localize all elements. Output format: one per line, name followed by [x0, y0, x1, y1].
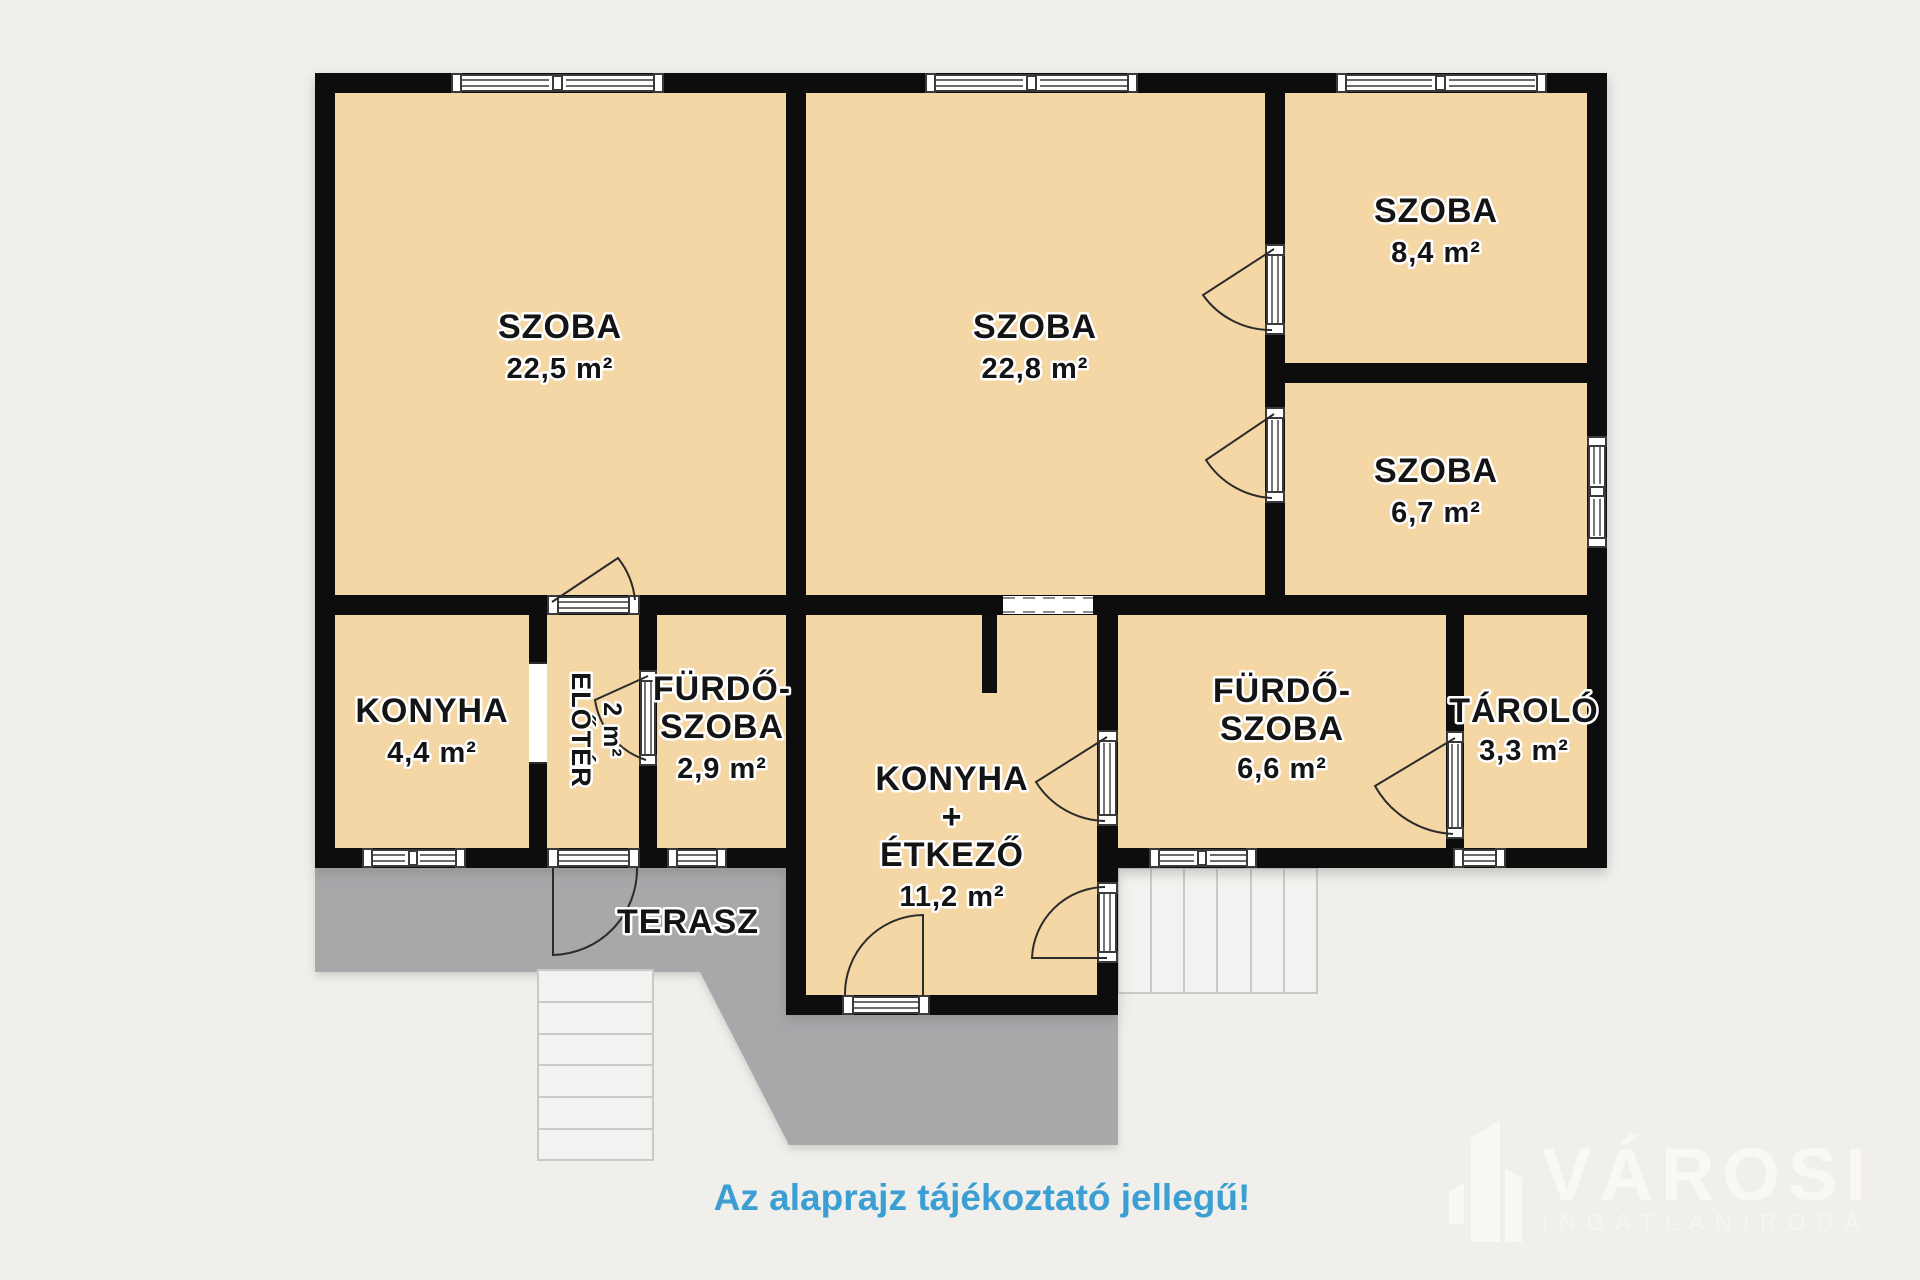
label-konyha-etkezo-line2: ÉTKEZŐ: [880, 836, 1024, 874]
area-eloter: 2 m²: [598, 702, 626, 757]
logo-brand: VÁROSI: [1542, 1133, 1874, 1216]
label-konyha-etkezo-line1: KONYHA: [875, 760, 1028, 798]
window-icon: [926, 74, 1137, 92]
window-icon: [1150, 849, 1256, 867]
floor-plan-canvas: SZOBA 22,5 m² SZOBA 22,8 m² SZOBA 8,4 m²…: [0, 0, 1920, 1280]
area-szoba-22-8: 22,8 m²: [982, 353, 1089, 385]
label-tarolo: TÁROLÓ: [1449, 692, 1599, 730]
stairs-right: [1118, 868, 1317, 993]
area-konyha: 4,4 m²: [387, 737, 477, 769]
room-tarolo: [1464, 615, 1587, 848]
label-furdoszoba-2-9-line2: SZOBA: [660, 708, 784, 746]
window-icon: [1454, 849, 1505, 867]
interior-opening: [1003, 596, 1093, 614]
label-szoba-22-5: SZOBA: [498, 308, 622, 346]
window-icon: [452, 74, 663, 92]
label-konyha: KONYHA: [355, 692, 508, 730]
area-tarolo: 3,3 m²: [1479, 735, 1569, 767]
label-eloter: ELŐTÉR: [566, 672, 597, 788]
label-szoba-22-8: SZOBA: [973, 308, 1097, 346]
window-icon: [363, 849, 465, 867]
area-furdoszoba-2-9: 2,9 m²: [677, 753, 767, 785]
room-konyha: [335, 615, 529, 848]
label-furdoszoba-2-9-line1: FÜRDŐ-: [653, 670, 791, 708]
area-furdoszoba-6-6: 6,6 m²: [1237, 753, 1327, 785]
window-icon: [1588, 437, 1606, 547]
label-konyha-etkezo-plus: +: [942, 798, 963, 836]
stub-wall: [982, 615, 997, 693]
window-icon: [1337, 74, 1546, 92]
window-icon: [668, 849, 726, 867]
disclaimer-caption: Az alaprajz tájékoztató jellegű!: [714, 1177, 1251, 1218]
label-terasz: TERASZ: [617, 903, 759, 941]
label-szoba-6-7: SZOBA: [1374, 452, 1498, 490]
area-szoba-8-4: 8,4 m²: [1391, 237, 1481, 269]
area-szoba-6-7: 6,7 m²: [1391, 497, 1481, 529]
area-szoba-22-5: 22,5 m²: [507, 353, 614, 385]
area-konyha-etkezo: 11,2 m²: [899, 881, 1004, 913]
label-szoba-8-4: SZOBA: [1374, 192, 1498, 230]
label-furdoszoba-6-6-line1: FÜRDŐ-: [1213, 672, 1351, 710]
logo-subtitle: INGATLANIRODA: [1541, 1209, 1870, 1235]
label-furdoszoba-6-6-line2: SZOBA: [1220, 710, 1344, 748]
wall-opening: [529, 663, 547, 763]
stairs-terrace: [538, 970, 653, 1160]
floor-plan-page: SZOBA 22,5 m² SZOBA 22,8 m² SZOBA 8,4 m²…: [0, 0, 1920, 1280]
